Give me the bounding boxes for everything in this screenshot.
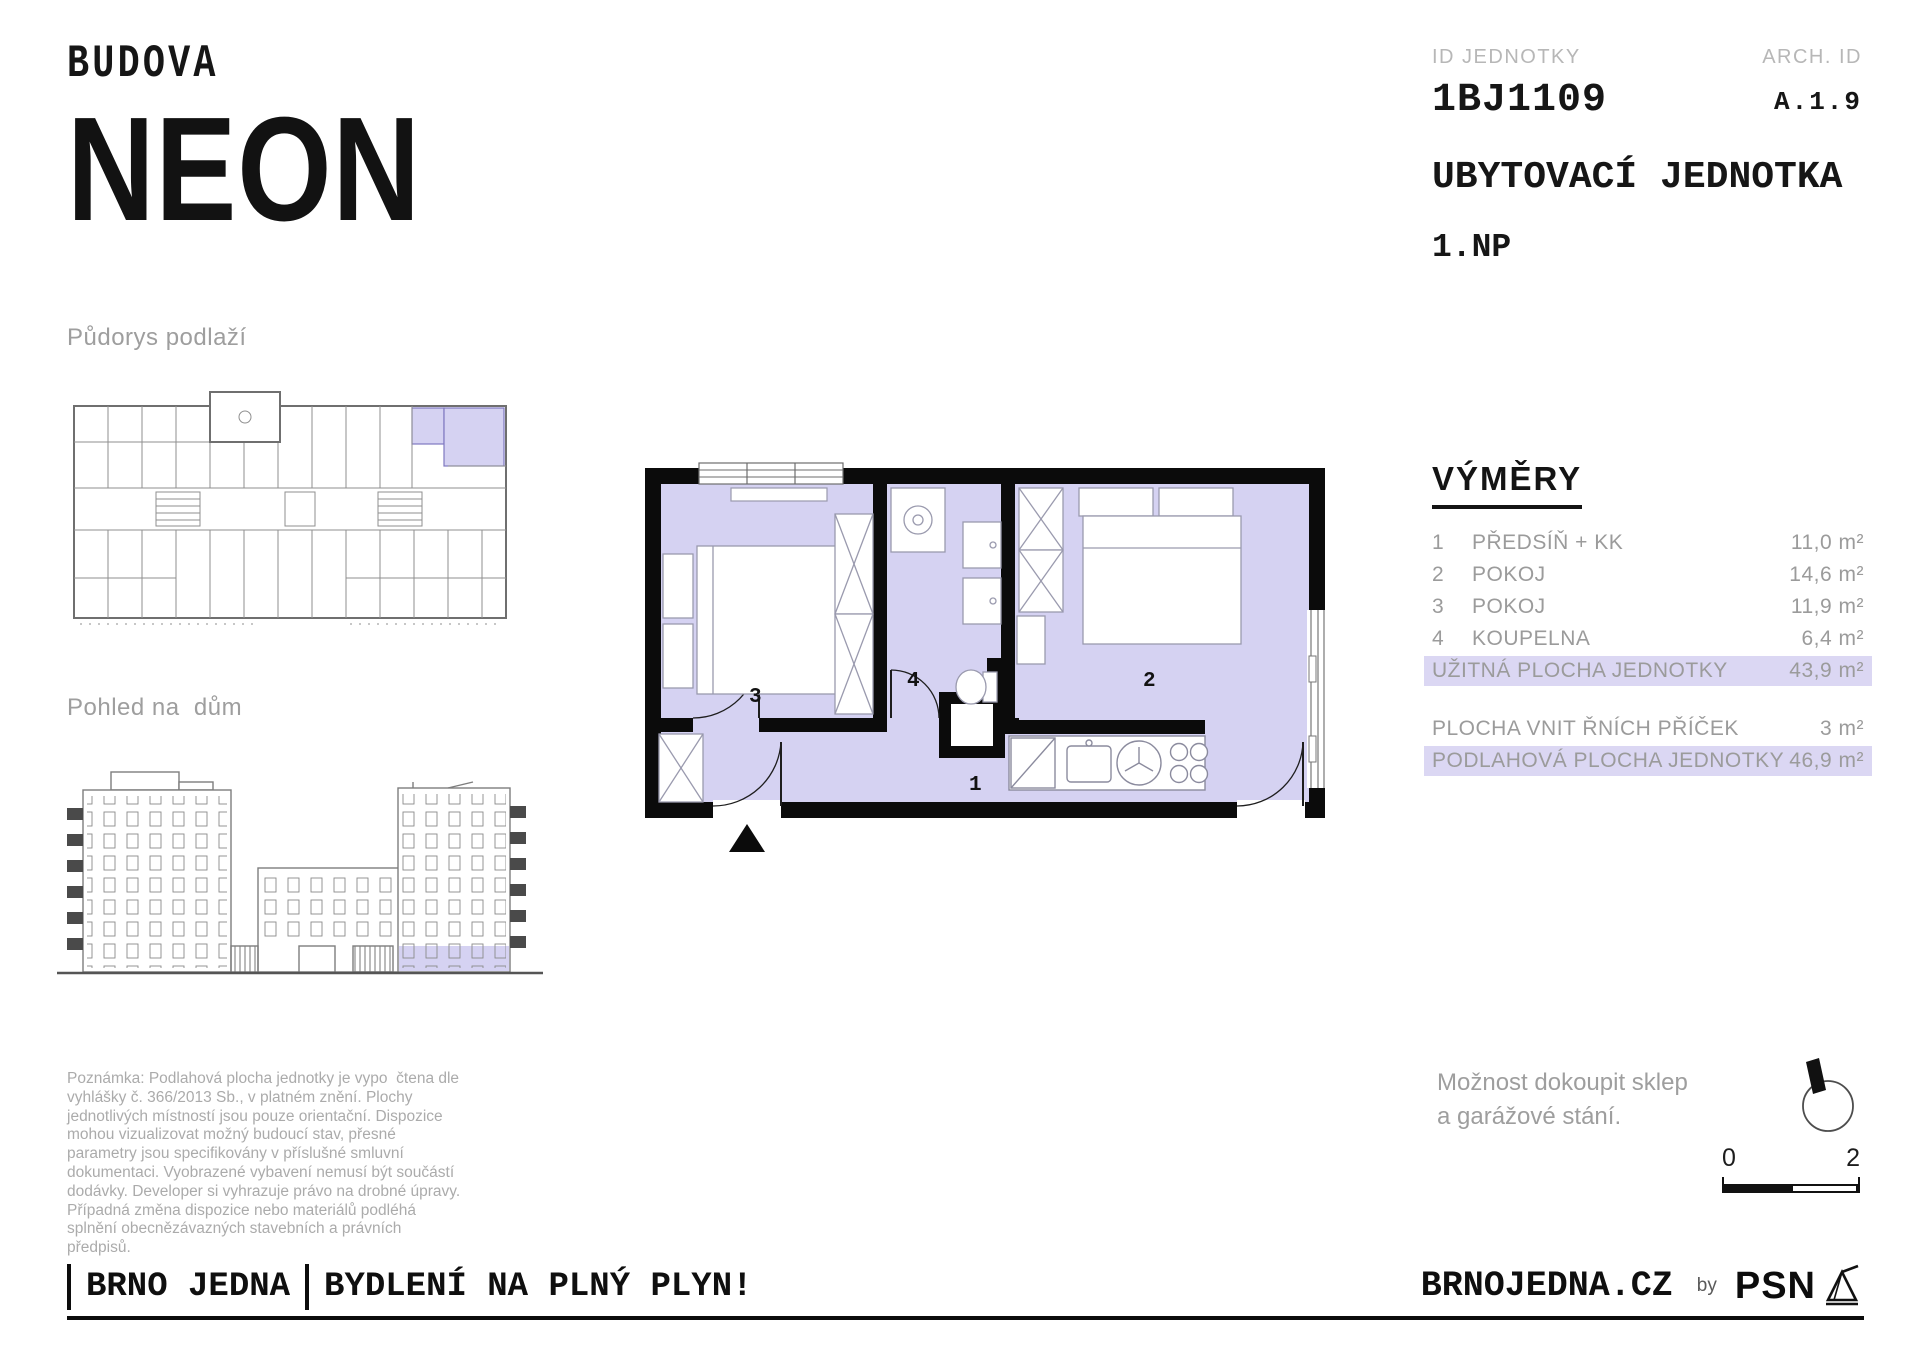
summary-label: PLOCHA VNIT ŘNÍCH PŘÍČEK bbox=[1432, 717, 1820, 741]
burner bbox=[1191, 744, 1208, 761]
bed3 bbox=[697, 546, 849, 694]
kitchen-sink bbox=[1067, 746, 1111, 782]
areas-title: VÝMĚRY bbox=[1432, 460, 1582, 509]
psn-logo-icon bbox=[1818, 1264, 1862, 1308]
room-name: KOUPELNA bbox=[1472, 627, 1801, 651]
scale-end: 2 bbox=[1846, 1144, 1860, 1173]
scale-bar-filled bbox=[1724, 1184, 1791, 1193]
psn-logo: PSN bbox=[1735, 1264, 1862, 1308]
extras-line2: a garážové stání. bbox=[1437, 1100, 1688, 1134]
shaft bbox=[951, 704, 993, 746]
footer-website-link[interactable]: BRNOJEDNA.CZ bbox=[1421, 1266, 1673, 1306]
room-number: 1 bbox=[1432, 531, 1472, 555]
burner bbox=[1171, 766, 1188, 783]
bed2 bbox=[1083, 516, 1241, 644]
summary-label: UŽITNÁ PLOCHA JEDNOTKY bbox=[1432, 659, 1789, 683]
arch-id-label: ARCH. ID bbox=[1762, 46, 1862, 69]
floorplan-overview-drawing bbox=[60, 372, 520, 652]
brand-logo: BUDOVA NEON bbox=[67, 38, 499, 244]
unit-floorplan-drawing: 1 2 3 4 bbox=[643, 458, 1327, 858]
table-row: 1 PŘEDSÍŇ + KK 11,0 m² bbox=[1432, 527, 1864, 559]
elevation-section-title: Pohled na dům bbox=[67, 694, 242, 722]
overview-top-room bbox=[210, 392, 280, 442]
footer-slogan: BYDLENÍ NA PLNÝ PLYN! bbox=[324, 1268, 752, 1306]
scale-bar-empty bbox=[1791, 1184, 1858, 1193]
footer-left: BRNO JEDNA BYDLENÍ NA PLNÝ PLYN! bbox=[67, 1264, 753, 1310]
burner bbox=[1191, 766, 1208, 783]
bed2-cushion bbox=[1079, 488, 1153, 516]
scale-track bbox=[1722, 1175, 1860, 1195]
bed2-cushion bbox=[1159, 488, 1233, 516]
partitions-area-row: PLOCHA VNIT ŘNÍCH PŘÍČEK 3 m² bbox=[1432, 713, 1864, 745]
room-area: 14,6 m² bbox=[1789, 563, 1864, 587]
footer-by-label: by bbox=[1697, 1275, 1717, 1297]
usable-area-row: UŽITNÁ PLOCHA JEDNOTKY 43,9 m² bbox=[1424, 656, 1872, 686]
right-tower bbox=[398, 782, 526, 972]
scale-start: 0 bbox=[1722, 1144, 1736, 1173]
right-tower-balconies bbox=[510, 806, 526, 948]
room-area: 11,0 m² bbox=[1791, 531, 1864, 555]
unit-header: ID JEDNOTKY 1BJ1109 ARCH. ID A.1.9 UBYTO… bbox=[1432, 46, 1862, 266]
burner bbox=[1171, 744, 1188, 761]
footer-divider bbox=[67, 1264, 71, 1310]
arch-id-value: A.1.9 bbox=[1762, 87, 1862, 117]
floor-area-row: PODLAHOVÁ PLOCHA JEDNOTKY 46,9 m² bbox=[1424, 746, 1872, 776]
footer-brand: BRNO JEDNA bbox=[86, 1268, 290, 1306]
hall-wardrobe bbox=[659, 734, 703, 802]
room-number: 4 bbox=[1432, 627, 1472, 651]
footer-divider bbox=[305, 1264, 309, 1310]
north-compass-icon bbox=[1782, 1054, 1866, 1138]
legal-note: Poznámka: Podlahová plocha jednotky je v… bbox=[67, 1070, 469, 1258]
summary-label: PODLAHOVÁ PLOCHA JEDNOTKY bbox=[1432, 749, 1789, 773]
room-number: 2 bbox=[1432, 563, 1472, 587]
room-label-3: 3 bbox=[749, 686, 762, 709]
bed3-cushion bbox=[663, 554, 693, 618]
psn-logo-text: PSN bbox=[1735, 1265, 1816, 1308]
brand-building-label: BUDOVA bbox=[67, 38, 412, 90]
table-row: 2 POKOJ 14,6 m² bbox=[1432, 559, 1864, 591]
extras-line1: Možnost dokoupit sklep bbox=[1437, 1066, 1688, 1100]
areas-rows: 1 PŘEDSÍŇ + KK 11,0 m² 2 POKOJ 14,6 m² 3… bbox=[1432, 527, 1864, 776]
unit-id-label: ID JEDNOTKY bbox=[1432, 46, 1607, 69]
footer-rule bbox=[67, 1316, 1864, 1320]
unit-id-block: ID JEDNOTKY 1BJ1109 bbox=[1432, 46, 1607, 123]
brand-building-name: NEON bbox=[67, 96, 421, 244]
room-name: POKOJ bbox=[1472, 563, 1789, 587]
footer-right: BRNOJEDNA.CZ by PSN bbox=[1421, 1264, 1862, 1308]
room-label-2: 2 bbox=[1143, 670, 1156, 693]
room-label-4: 4 bbox=[907, 670, 920, 693]
desk2 bbox=[1017, 616, 1045, 664]
room-name: PŘEDSÍŇ + KK bbox=[1472, 531, 1791, 555]
left-tower bbox=[67, 772, 231, 972]
room-number: 3 bbox=[1432, 595, 1472, 619]
summary-value: 43,9 m² bbox=[1789, 659, 1864, 683]
room-name: POKOJ bbox=[1472, 595, 1791, 619]
unit-floor: 1.NP bbox=[1432, 229, 1862, 266]
toilet bbox=[956, 670, 986, 704]
extras-note: Možnost dokoupit sklep a garážové stání. bbox=[1437, 1066, 1688, 1134]
table-row: 4 KOUPELNA 6,4 m² bbox=[1432, 623, 1864, 655]
summary-value: 46,9 m² bbox=[1789, 749, 1864, 773]
bed3-cushion bbox=[663, 624, 693, 688]
unit-type-title: UBYTOVACÍ JEDNOTKA bbox=[1432, 156, 1862, 199]
building-elevation-drawing bbox=[53, 742, 548, 987]
left-tower-balconies bbox=[67, 808, 83, 950]
floorplan-sheet: BUDOVA NEON ID JEDNOTKY 1BJ1109 ARCH. ID… bbox=[0, 0, 1920, 1358]
room-label-1: 1 bbox=[969, 774, 982, 797]
kitchen-counter bbox=[1009, 736, 1208, 790]
room-area: 6,4 m² bbox=[1801, 627, 1864, 651]
areas-table: VÝMĚRY 1 PŘEDSÍŇ + KK 11,0 m² 2 POKOJ 14… bbox=[1432, 460, 1864, 777]
overview-section-title: Půdorys podlaží bbox=[67, 324, 247, 352]
scale-bar: 0 2 bbox=[1722, 1144, 1860, 1195]
arch-id-block: ARCH. ID A.1.9 bbox=[1762, 46, 1862, 117]
table-row: 3 POKOJ 11,9 m² bbox=[1432, 591, 1864, 623]
unit-id-value: 1BJ1109 bbox=[1432, 78, 1607, 123]
summary-value: 3 m² bbox=[1820, 717, 1864, 741]
room-area: 11,9 m² bbox=[1791, 595, 1864, 619]
window-right bbox=[1307, 610, 1326, 788]
entry-arrow-icon bbox=[729, 824, 765, 852]
